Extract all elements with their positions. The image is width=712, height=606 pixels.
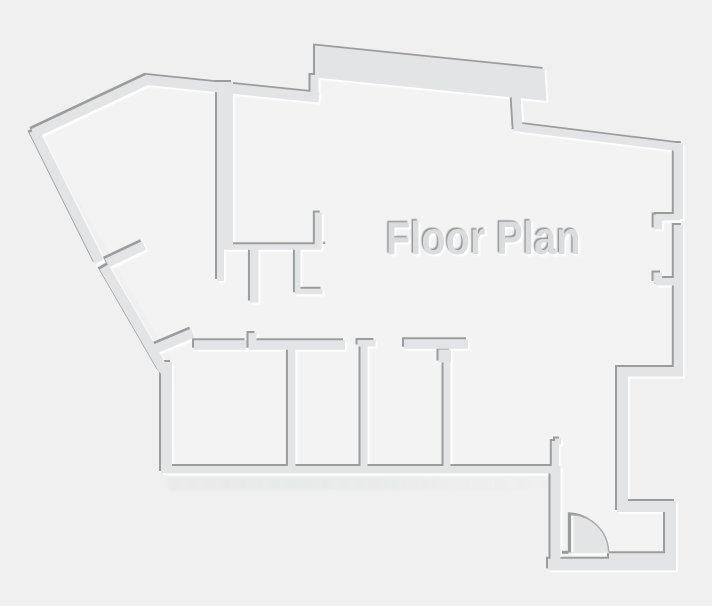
svg-text:Floor Plan: Floor Plan [386, 212, 581, 264]
